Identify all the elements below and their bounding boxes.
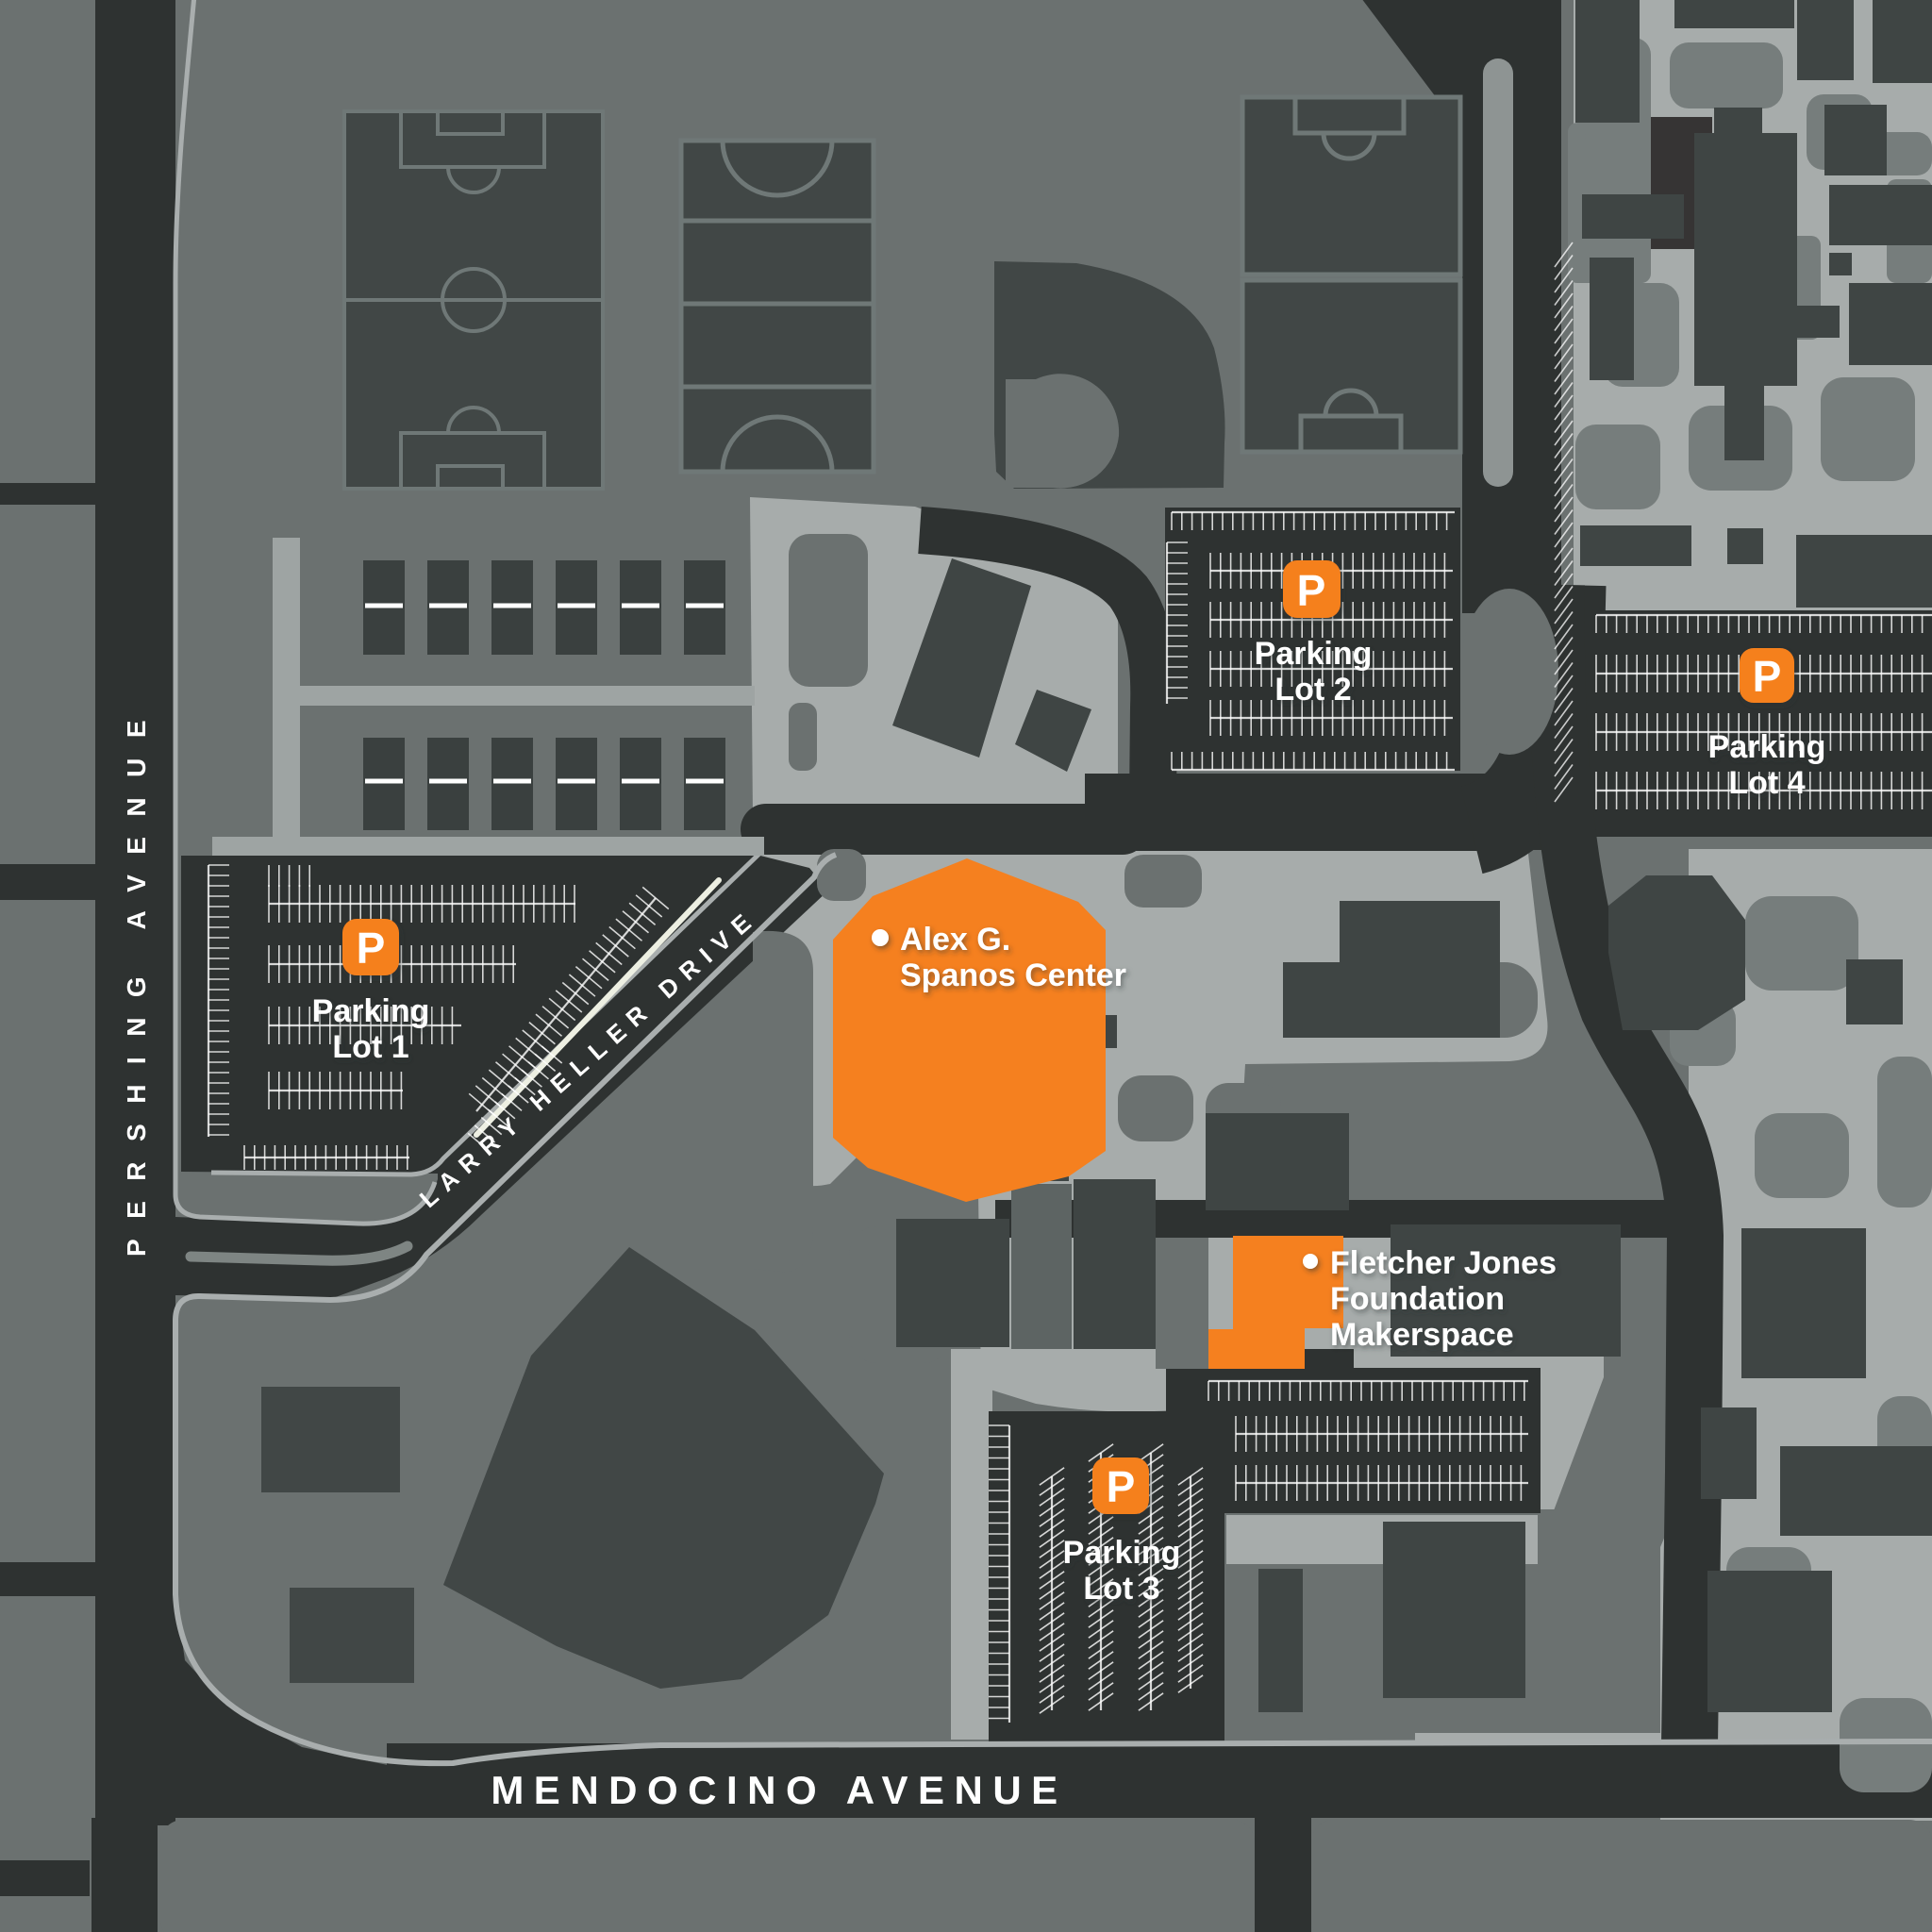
svg-text:Lot 4: Lot 4	[1728, 765, 1805, 801]
svg-text:Makerspace: Makerspace	[1330, 1317, 1514, 1353]
svg-text:Alex G.: Alex G.	[900, 922, 1010, 958]
svg-text:P: P	[357, 924, 386, 973]
svg-text:P: P	[1107, 1462, 1136, 1511]
svg-text:Lot 1: Lot 1	[332, 1029, 408, 1065]
svg-text:Fletcher Jones: Fletcher Jones	[1330, 1245, 1557, 1281]
svg-text:P: P	[1297, 566, 1326, 615]
svg-text:MENDOCINO AVENUE: MENDOCINO AVENUE	[491, 1768, 1067, 1812]
svg-text:Spanos Center: Spanos Center	[900, 958, 1126, 993]
svg-text:P: P	[1753, 652, 1782, 701]
svg-text:Parking: Parking	[1255, 636, 1373, 672]
svg-text:Parking: Parking	[1063, 1535, 1181, 1571]
svg-text:Lot 2: Lot 2	[1274, 672, 1351, 708]
svg-text:Parking: Parking	[1708, 729, 1826, 765]
svg-text:PERSHING AVENUE: PERSHING AVENUE	[122, 700, 151, 1257]
svg-text:Foundation: Foundation	[1330, 1281, 1505, 1317]
svg-text:Parking: Parking	[312, 993, 430, 1029]
svg-text:Lot 3: Lot 3	[1083, 1571, 1159, 1607]
